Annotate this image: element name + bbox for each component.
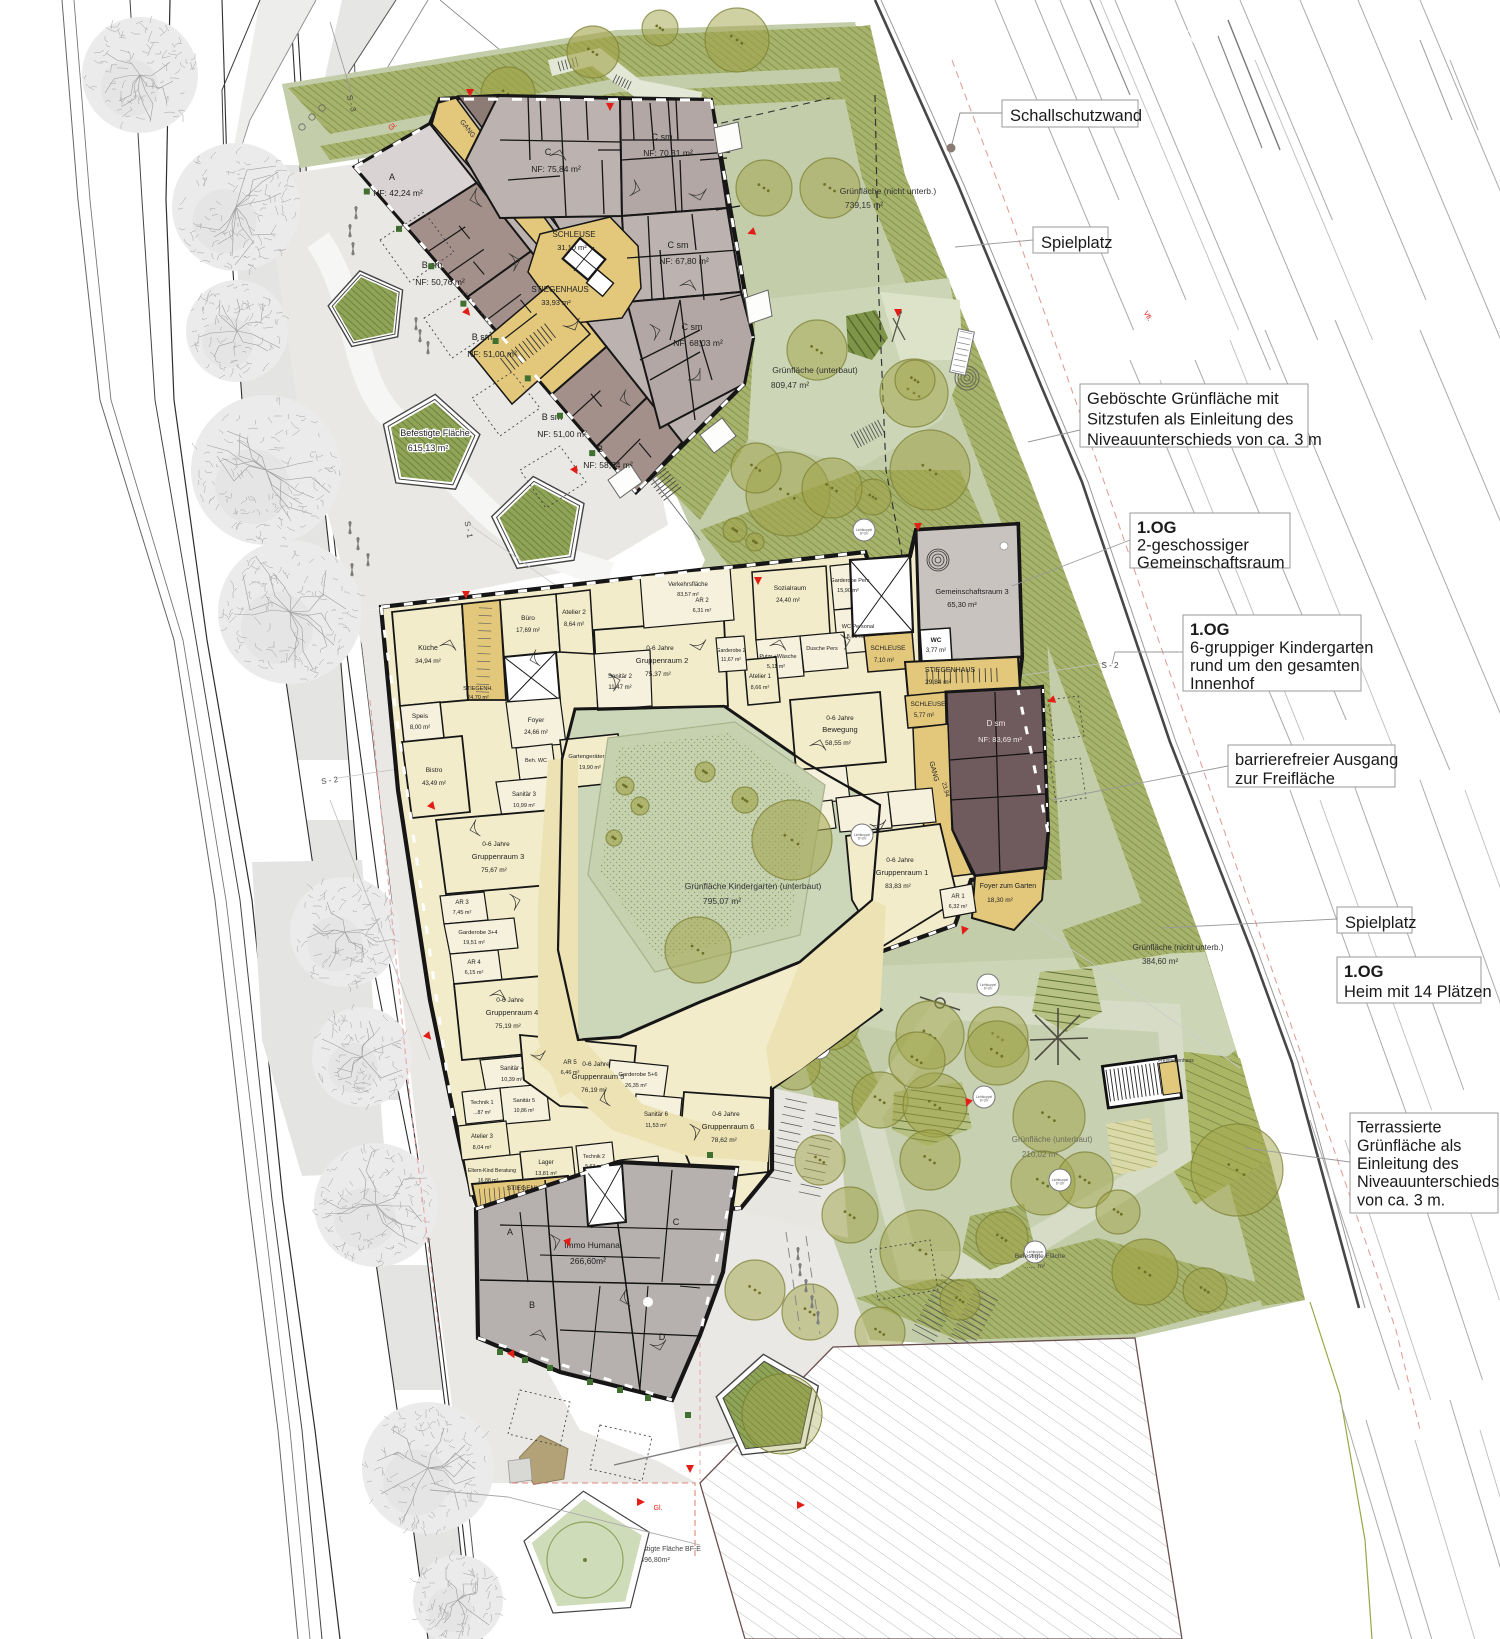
svg-text:16,88 m²: 16,88 m²: [478, 1178, 499, 1184]
svg-text:Garderobe 3+4: Garderobe 3+4: [458, 930, 498, 936]
svg-text:barrierefreier Ausgang: barrierefreier Ausgang: [1235, 751, 1398, 769]
svg-text:17,69 m²: 17,69 m²: [516, 628, 540, 634]
svg-text:D=2m: D=2m: [984, 987, 993, 991]
svg-text:13,81 m²: 13,81 m²: [535, 1171, 557, 1177]
svg-text:Grünfläche (unterbaut): Grünfläche (unterbaut): [772, 365, 858, 375]
svg-text:C sm: C sm: [668, 240, 689, 250]
svg-text:C: C: [673, 1217, 680, 1227]
svg-text:NF: 50,76 m²: NF: 50,76 m²: [415, 277, 465, 287]
svg-text:Atelier 3: Atelier 3: [471, 1134, 494, 1140]
svg-text:8,04 m²: 8,04 m²: [473, 1145, 492, 1151]
svg-text:75,67 m²: 75,67 m²: [481, 867, 507, 874]
svg-text:von ca. 3 m.: von ca. 3 m.: [1357, 1191, 1445, 1209]
svg-text:Grünfläche Kindergarten (unter: Grünfläche Kindergarten (unterbaut): [685, 881, 822, 891]
svg-text:10,86 m²: 10,86 m²: [514, 1108, 535, 1114]
svg-text:D=2m: D=2m: [860, 532, 869, 536]
svg-text:Gemeinschaftsraum: Gemeinschaftsraum: [1137, 554, 1285, 572]
svg-text:8,66 m²: 8,66 m²: [751, 685, 770, 691]
svg-text:Gruppenraum 3: Gruppenraum 3: [472, 852, 525, 861]
svg-text:Büro: Büro: [521, 615, 535, 622]
svg-text:Immo Humana: Immo Humana: [564, 1240, 620, 1250]
svg-text:0-6 Jahre: 0-6 Jahre: [646, 645, 674, 652]
svg-text:AR 5: AR 5: [563, 1060, 577, 1066]
svg-text:AR 1: AR 1: [951, 894, 965, 900]
svg-text:Atelier 2: Atelier 2: [562, 609, 586, 616]
svg-text:Niveauunterschieds: Niveauunterschieds: [1357, 1173, 1499, 1191]
svg-text:8,61 m²: 8,61 m²: [847, 634, 866, 640]
svg-text:266,60m²: 266,60m²: [570, 1256, 606, 1266]
svg-text:Garderobe 2: Garderobe 2: [716, 648, 745, 654]
svg-text:STIEGENHAUS: STIEGENHAUS: [925, 667, 976, 674]
svg-text:AR 2: AR 2: [695, 598, 709, 604]
svg-text:Grünfläche (unterbaut): Grünfläche (unterbaut): [1012, 1135, 1093, 1144]
svg-text:75,37 m²: 75,37 m²: [645, 671, 671, 678]
svg-text:NF: 70,31 m²: NF: 70,31 m²: [643, 148, 693, 158]
svg-text:26,35 m²: 26,35 m²: [625, 1083, 647, 1089]
svg-text:Gruppenraum 5: Gruppenraum 5: [572, 1072, 625, 1081]
svg-text:0-6 Jahre: 0-6 Jahre: [496, 997, 524, 1004]
svg-text:Gruppenraum 6: Gruppenraum 6: [702, 1122, 755, 1131]
svg-text:Dusche Pers: Dusche Pers: [806, 646, 838, 652]
svg-text:STIEGENH.: STIEGENH.: [463, 686, 493, 692]
svg-text:NF: 42,24 m²: NF: 42,24 m²: [373, 188, 423, 198]
svg-text:18,30 m²: 18,30 m²: [987, 897, 1013, 904]
svg-text:Beh. WC: Beh. WC: [525, 758, 547, 764]
svg-text:34,94 m²: 34,94 m²: [415, 658, 441, 665]
svg-text:Sozialraum: Sozialraum: [774, 585, 807, 592]
svg-text:Spielplatz: Spielplatz: [1041, 234, 1113, 252]
svg-text:AR 4: AR 4: [467, 960, 481, 966]
svg-text:Lager: Lager: [538, 1160, 553, 1166]
svg-text:Sanitär 4: Sanitär 4: [500, 1066, 525, 1072]
svg-text:795,07 m²: 795,07 m²: [703, 896, 741, 906]
svg-text:...,.. m²: ...,.. m²: [1025, 1263, 1046, 1270]
svg-text:Terrassierte: Terrassierte: [1357, 1119, 1442, 1137]
svg-text:24,40 m²: 24,40 m²: [776, 598, 800, 604]
svg-text:D=2m: D=2m: [1056, 1182, 1065, 1186]
svg-text:6,32 m²: 6,32 m²: [949, 904, 968, 910]
svg-text:5,77 m²: 5,77 m²: [914, 713, 934, 719]
svg-text:Gl.: Gl.: [654, 1505, 663, 1512]
svg-text:Sanitär 6: Sanitär 6: [644, 1112, 669, 1118]
svg-text:zur Freifläche: zur Freifläche: [1235, 770, 1335, 788]
svg-text:75,19 m²: 75,19 m²: [495, 1023, 521, 1030]
svg-text:809,47 m²: 809,47 m²: [771, 380, 809, 390]
svg-text:10,99 m²: 10,99 m²: [513, 803, 535, 809]
svg-text:19,90 m²: 19,90 m²: [579, 765, 601, 771]
svg-text:D=2m: D=2m: [980, 1099, 989, 1103]
svg-text:Gruppenraum 2: Gruppenraum 2: [636, 656, 689, 665]
svg-text:B: B: [529, 1300, 535, 1310]
svg-text:7,10 m²: 7,10 m²: [874, 658, 894, 664]
svg-text:Geböschte Grünfläche mit: Geböschte Grünfläche mit: [1087, 390, 1279, 408]
svg-text:11,53 m²: 11,53 m²: [645, 1123, 666, 1129]
svg-text:NF: 75,84 m²: NF: 75,84 m²: [531, 164, 581, 174]
svg-text:Küche: Küche: [418, 645, 438, 652]
svg-text:0-6 Jahre: 0-6 Jahre: [886, 857, 914, 864]
svg-text:NF: 68,03 m²: NF: 68,03 m²: [673, 338, 723, 348]
svg-text:Speis: Speis: [412, 713, 429, 720]
svg-text:615,13 m²: 615,13 m²: [408, 443, 449, 453]
svg-text:Freistiegenhaus: Freistiegenhaus: [1158, 1058, 1194, 1064]
svg-text:Putzr.+Wäsche: Putzr.+Wäsche: [759, 654, 796, 660]
svg-text:1.OG: 1.OG: [1137, 519, 1176, 537]
svg-text:3,77 m²: 3,77 m²: [926, 648, 946, 654]
svg-text:1.OG: 1.OG: [1344, 963, 1383, 981]
svg-text:B sm: B sm: [472, 332, 493, 342]
svg-text:0-6 Jahre: 0-6 Jahre: [482, 841, 510, 848]
svg-text:24,66 m²: 24,66 m²: [524, 730, 548, 736]
svg-text:A: A: [389, 172, 395, 182]
svg-text:Atelier 1: Atelier 1: [749, 674, 772, 680]
svg-text:78,62 m²: 78,62 m²: [711, 1137, 737, 1144]
svg-text:A: A: [507, 1227, 513, 1237]
svg-text:8,64 m²: 8,64 m²: [564, 622, 584, 628]
svg-text:NF: 58,74 m²: NF: 58,74 m²: [583, 460, 633, 470]
svg-text:Grünfläche (nicht unterb.): Grünfläche (nicht unterb.): [840, 186, 937, 196]
svg-text:384,60 m²: 384,60 m²: [1142, 957, 1178, 966]
svg-text:NF: 51,00 m²: NF: 51,00 m²: [537, 429, 587, 439]
svg-text:Grünfläche als: Grünfläche als: [1357, 1137, 1461, 1155]
svg-text:Garderobe 5+6: Garderobe 5+6: [618, 1072, 657, 1078]
svg-text:Gemeinschaftsraum 3: Gemeinschaftsraum 3: [935, 587, 1008, 596]
svg-text:496,80m²: 496,80m²: [640, 1557, 670, 1564]
svg-text:WC: WC: [931, 637, 942, 644]
svg-text:Befestigte Fläche: Befestigte Fläche: [1015, 1253, 1066, 1260]
svg-text:Sanitär 3: Sanitär 3: [512, 792, 537, 798]
svg-text:Foyer: Foyer: [528, 717, 545, 724]
svg-text:Heim mit 14 Plätzen: Heim mit 14 Plätzen: [1344, 983, 1492, 1001]
svg-text:C sm: C sm: [652, 132, 673, 142]
svg-text:Niveauunterschieds von ca. 3 m: Niveauunterschieds von ca. 3 m: [1087, 431, 1322, 449]
svg-text:10,39 m²: 10,39 m²: [501, 1077, 523, 1083]
svg-text:210,02 m²: 210,02 m²: [1022, 1150, 1058, 1159]
svg-text:8,00 m²: 8,00 m²: [410, 725, 430, 731]
svg-text:Sanitär 5: Sanitär 5: [513, 1098, 535, 1104]
svg-text:6,15 m²: 6,15 m²: [465, 970, 484, 976]
svg-text:Verkehrsfläche: Verkehrsfläche: [668, 582, 708, 588]
svg-text:Innenhof: Innenhof: [1190, 675, 1255, 693]
svg-text:6,31 m²: 6,31 m²: [693, 608, 712, 614]
svg-text:739,15 m²: 739,15 m²: [845, 200, 883, 210]
svg-text:2-geschossiger: 2-geschossiger: [1137, 536, 1249, 554]
svg-text:65,30 m²: 65,30 m²: [947, 600, 977, 609]
svg-text:11,47 m²: 11,47 m²: [608, 685, 631, 691]
svg-text:Bewegung: Bewegung: [822, 725, 857, 734]
svg-text:5,11 m²: 5,11 m²: [767, 664, 785, 670]
svg-text:NF: 51,00 m²: NF: 51,00 m²: [467, 349, 517, 359]
svg-text:Sitzstufen als Einleitung des: Sitzstufen als Einleitung des: [1087, 410, 1293, 428]
svg-text:83,83 m²: 83,83 m²: [885, 883, 911, 890]
svg-text:15,90 m²: 15,90 m²: [837, 588, 859, 594]
svg-text:D sm: D sm: [987, 719, 1006, 728]
svg-text:D=2m: D=2m: [858, 837, 867, 841]
svg-text:83,57 m²: 83,57 m²: [677, 592, 699, 598]
svg-text:Garderobe Pers: Garderobe Pers: [830, 578, 869, 584]
svg-text:19,51 m²: 19,51 m²: [463, 940, 485, 946]
svg-text:1.OG: 1.OG: [1190, 621, 1229, 639]
svg-text:S - 2: S - 2: [1102, 661, 1119, 670]
svg-text:D: D: [659, 1332, 666, 1342]
svg-text:6-gruppiger Kindergarten: 6-gruppiger Kindergarten: [1190, 639, 1373, 657]
svg-text:NF: 67,80 m²: NF: 67,80 m²: [659, 256, 709, 266]
svg-text:24,70 m²: 24,70 m²: [467, 695, 489, 701]
svg-text:STIEGENHAUS: STIEGENHAUS: [531, 285, 588, 294]
svg-text:WC Personal: WC Personal: [842, 624, 874, 630]
svg-text:Befestigte Fläche: Befestigte Fläche: [400, 428, 470, 438]
svg-text:NF: 83,69 m²: NF: 83,69 m²: [978, 735, 1022, 744]
svg-text:rund um den gesamten: rund um den gesamten: [1190, 657, 1360, 675]
svg-text:Eltern-Kind Beratung: Eltern-Kind Beratung: [468, 1168, 516, 1174]
svg-text:...87 m²: ...87 m²: [473, 1110, 491, 1116]
svg-text:0-6 Jahre: 0-6 Jahre: [712, 1111, 740, 1118]
svg-text:11,67 m²: 11,67 m²: [721, 657, 741, 663]
svg-text:C sm: C sm: [682, 322, 703, 332]
svg-text:Spielplatz: Spielplatz: [1345, 914, 1417, 932]
svg-text:Gruppenraum 4: Gruppenraum 4: [486, 1008, 539, 1017]
svg-text:31,10 m²: 31,10 m²: [557, 243, 587, 252]
svg-text:Gruppenraum 1: Gruppenraum 1: [876, 868, 929, 877]
svg-text:SCHLEUSE: SCHLEUSE: [910, 701, 946, 708]
svg-text:58,55 m²: 58,55 m²: [825, 740, 851, 747]
svg-text:0-6 Jahre: 0-6 Jahre: [826, 715, 854, 722]
svg-text:Schallschutzwand: Schallschutzwand: [1010, 107, 1142, 125]
svg-text:43,49 m²: 43,49 m²: [422, 781, 446, 787]
svg-text:29,84 m²: 29,84 m²: [925, 679, 951, 686]
svg-text:Technik 2: Technik 2: [583, 1154, 605, 1160]
svg-text:SCHLEUSE: SCHLEUSE: [870, 645, 906, 652]
svg-text:AR 3: AR 3: [455, 900, 469, 906]
svg-text:Grünfläche (nicht unterb.): Grünfläche (nicht unterb.): [1133, 943, 1224, 952]
svg-text:Technik 1: Technik 1: [470, 1100, 493, 1106]
svg-text:Foyer zum Garten: Foyer zum Garten: [980, 883, 1037, 890]
svg-text:7,45 m²: 7,45 m²: [453, 910, 472, 916]
svg-text:B: B: [597, 444, 603, 454]
svg-text:Bistro: Bistro: [426, 767, 443, 774]
svg-text:33,93 m²: 33,93 m²: [541, 298, 571, 307]
svg-text:0-6 Jahre: 0-6 Jahre: [582, 1061, 610, 1068]
svg-text:Einleitung des: Einleitung des: [1357, 1155, 1459, 1173]
svg-text:SCHLEUSE: SCHLEUSE: [552, 230, 595, 239]
